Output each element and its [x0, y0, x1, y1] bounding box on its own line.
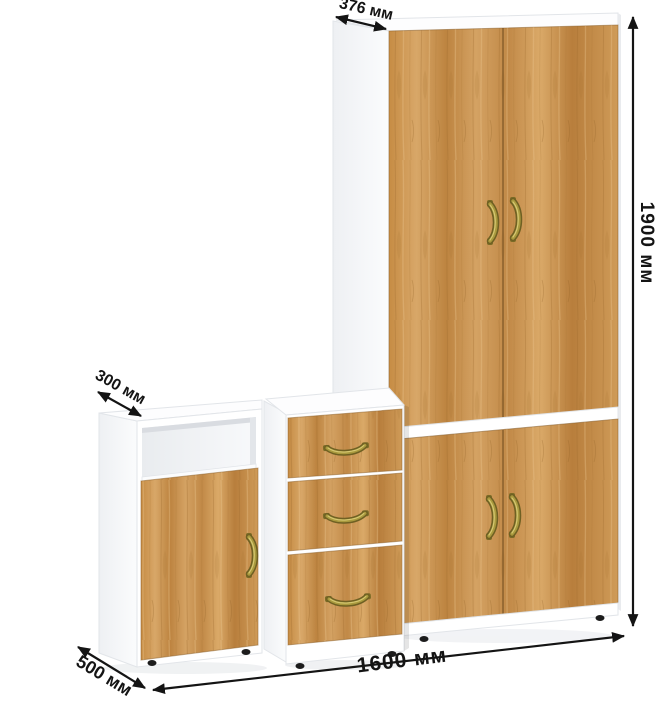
shelf-cabinet — [99, 400, 262, 667]
wardrobe-lower-doors — [389, 419, 618, 625]
dimension-label-total-height: 1900 мм — [635, 202, 656, 285]
shelf-cabinet-left-side — [99, 413, 137, 667]
drawer-2 — [288, 473, 402, 551]
shelf-cabinet-door — [141, 468, 258, 660]
furniture-scene — [0, 0, 656, 700]
drawer-unit — [264, 388, 409, 669]
drawer-1 — [288, 409, 402, 478]
drawer-3 — [288, 545, 402, 645]
product-render: 376 мм 1900 мм 300 мм 500 мм 1600 мм — [0, 0, 656, 700]
drawer-unit-right-shadow — [404, 405, 409, 651]
drawer-unit-left-side — [264, 401, 286, 662]
wardrobe-upper-doors — [389, 25, 618, 430]
